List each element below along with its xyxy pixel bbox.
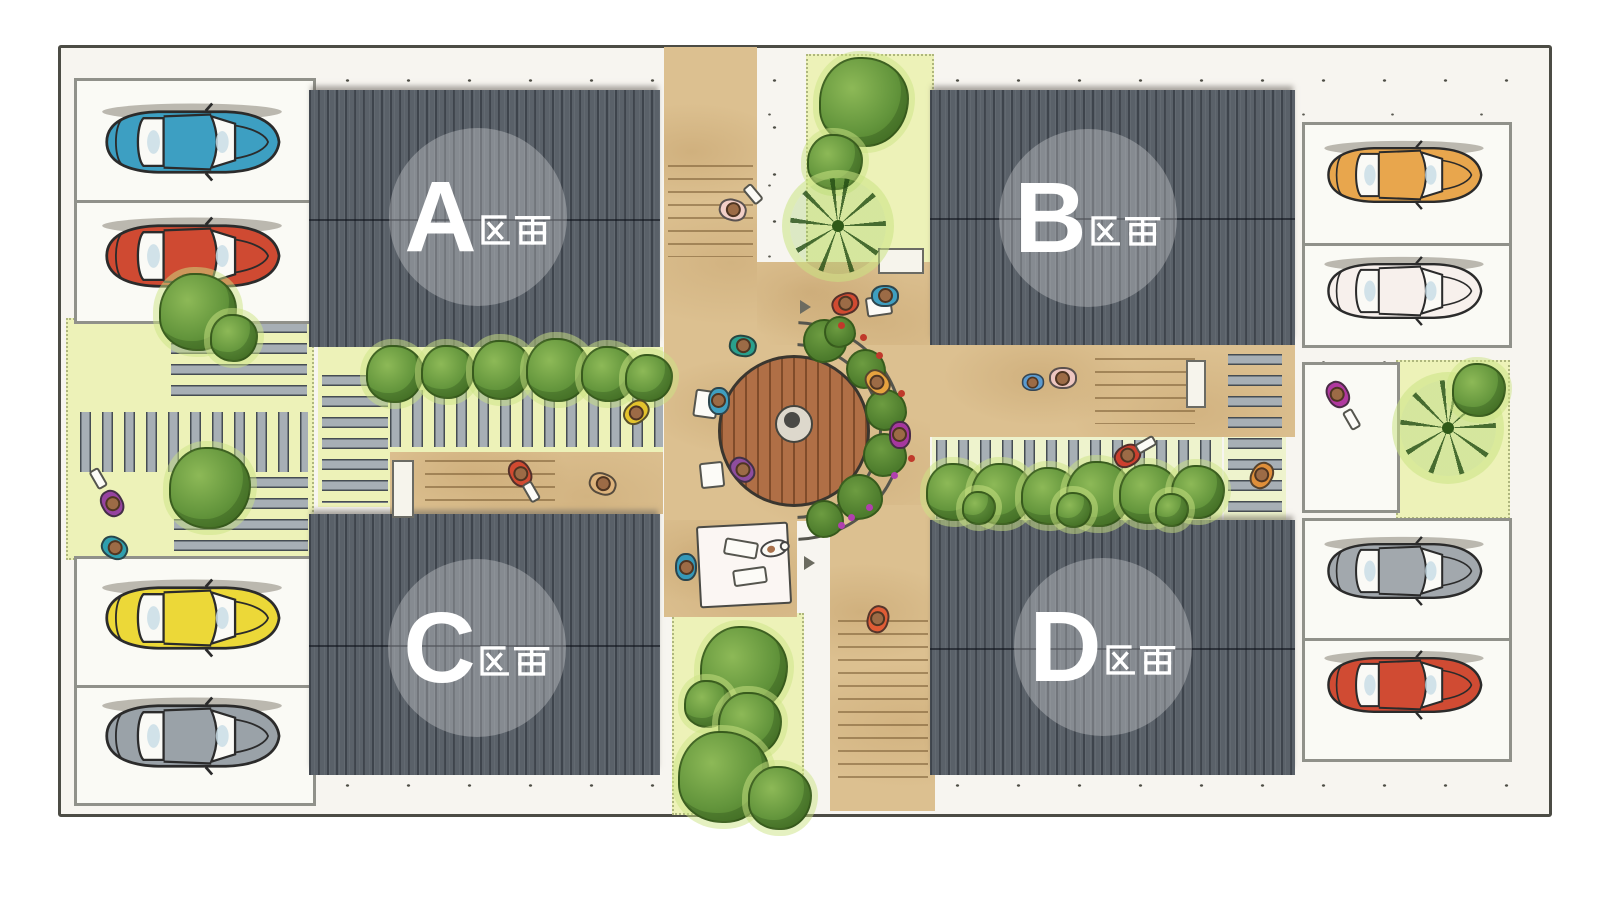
bench-west	[392, 460, 414, 518]
kukaku-kanji-icon	[1103, 641, 1177, 678]
car-bottom-left-1	[86, 574, 298, 662]
plot-a-label: A 区画	[404, 178, 551, 256]
person	[870, 278, 900, 312]
tree-bush	[962, 491, 996, 525]
site-plan-illustration: A 区画 B 区画	[0, 0, 1600, 900]
flower-dot	[891, 472, 898, 479]
person	[1048, 362, 1078, 396]
plot-c-letter: C	[403, 609, 472, 687]
kukaku-kanji-icon	[477, 642, 551, 679]
tree-bush	[421, 345, 475, 399]
stripe-paving-right	[1228, 354, 1282, 518]
tree-bush	[748, 766, 812, 830]
roof-plot-a: A 区画	[309, 90, 660, 347]
car-top-left-1	[86, 98, 298, 186]
stall-divider	[74, 200, 316, 203]
roof-plot-d: D 区画	[930, 520, 1295, 775]
flower-dot	[908, 455, 915, 462]
roof-plot-c: C 区画	[309, 514, 660, 775]
person-head	[1027, 377, 1039, 389]
car-bottom-right-2	[1310, 646, 1498, 724]
tree-bush	[1056, 492, 1092, 528]
tree-bush	[1452, 363, 1506, 417]
tree-bush	[366, 345, 424, 403]
kukaku-kanji-icon	[478, 211, 552, 248]
path-arrow-north	[800, 300, 811, 314]
bench-north	[878, 248, 924, 274]
plot-c-label: C 区画	[403, 609, 550, 687]
tree-bush	[472, 340, 532, 400]
tree-palm	[790, 178, 886, 274]
stall-divider	[74, 685, 316, 688]
stall-divider	[1302, 243, 1512, 246]
car-bottom-right-1	[1310, 532, 1498, 610]
tree-bush	[169, 447, 251, 529]
plot-d-letter: D	[1029, 608, 1098, 686]
car-bottom-left-2	[86, 692, 298, 780]
plot-d-label-circle: D 区画	[1014, 558, 1192, 736]
plot-d-label: D 区画	[1029, 608, 1176, 686]
person	[670, 552, 704, 582]
kukaku-kanji-icon	[1088, 212, 1162, 249]
trellis-foliage	[806, 500, 844, 538]
person	[701, 386, 735, 416]
person-head	[711, 393, 726, 408]
chair	[699, 461, 726, 489]
stall-divider	[1302, 638, 1512, 641]
plot-a-label-circle: A 区画	[389, 128, 567, 306]
person-head	[1055, 371, 1070, 386]
person	[1021, 369, 1045, 396]
plot-b-label-circle: B 区画	[999, 129, 1177, 307]
plot-b-label: B 区画	[1014, 179, 1161, 257]
flower-dot	[898, 390, 905, 397]
car-top-right-2	[1310, 252, 1498, 330]
bench-east	[1186, 360, 1206, 408]
person-head	[878, 288, 893, 303]
flower-dot	[860, 334, 867, 341]
roof-plot-b: B 区画	[930, 90, 1295, 345]
east-walkway-hatch	[1095, 358, 1195, 424]
flower-dot	[876, 352, 883, 359]
flower-dot	[838, 522, 845, 529]
person	[882, 420, 916, 450]
plot-c-label-circle: C 区画	[388, 559, 566, 737]
plot-b-letter: B	[1014, 179, 1083, 257]
trellis-foliage	[837, 474, 883, 520]
person-head	[679, 560, 694, 575]
plot-a-letter: A	[404, 178, 473, 256]
path-arrow-south	[804, 556, 815, 570]
person-head	[892, 427, 907, 442]
picnic-blanket	[696, 522, 792, 609]
person	[725, 326, 760, 365]
south-walkway-hatch	[838, 620, 928, 782]
tree-bush	[1155, 493, 1189, 527]
flower-dot	[848, 514, 855, 521]
car-top-right-1	[1310, 136, 1498, 214]
tree-bush	[210, 314, 258, 362]
flower-dot	[866, 504, 873, 511]
